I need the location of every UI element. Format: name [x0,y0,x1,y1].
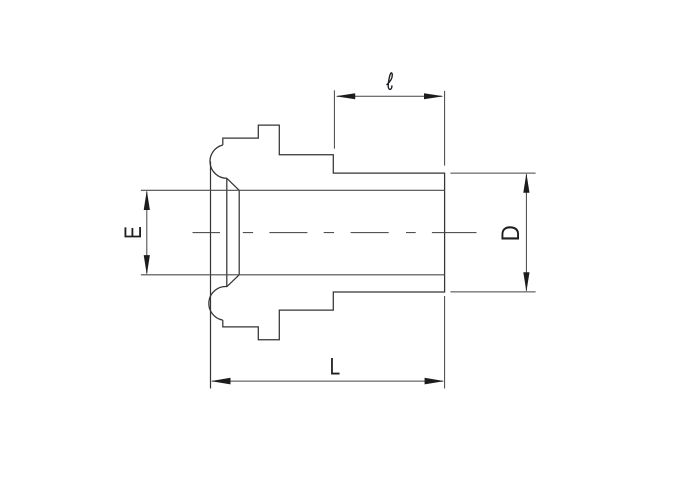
svg-text:L: L [330,352,341,380]
svg-text:E: E [119,226,147,239]
svg-text:D: D [497,225,525,241]
